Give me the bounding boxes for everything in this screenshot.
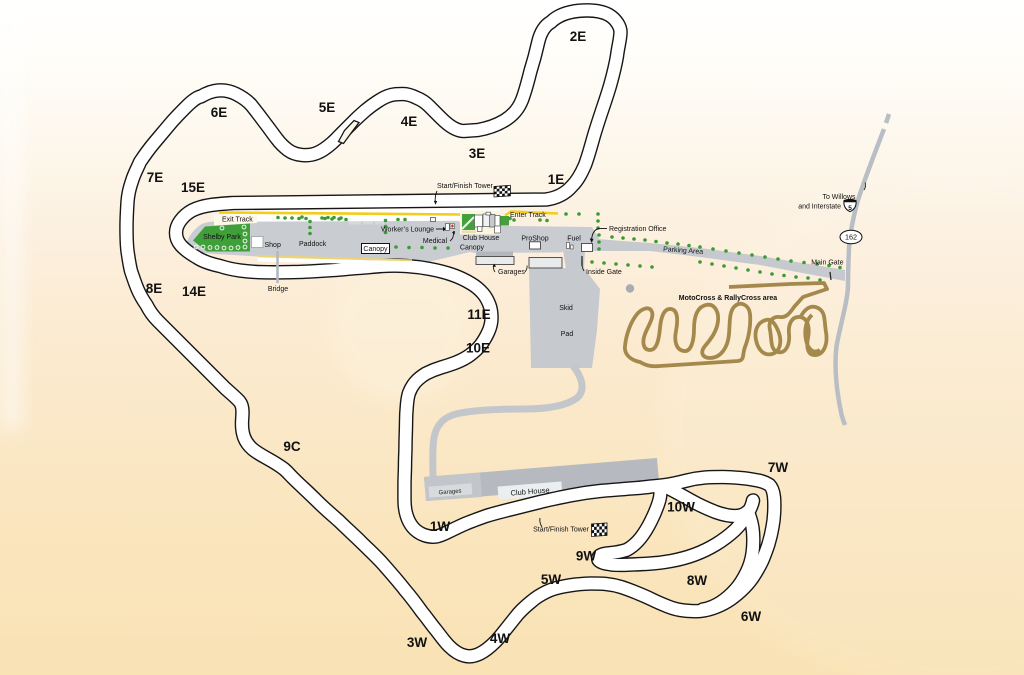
svg-text:Main Gate: Main Gate: [811, 260, 843, 267]
svg-text:2E: 2E: [570, 29, 587, 44]
svg-text:1W: 1W: [430, 519, 451, 534]
svg-text:Canopy: Canopy: [363, 246, 388, 253]
svg-text:Inside Gate: Inside Gate: [586, 269, 622, 276]
svg-text:Paddock: Paddock: [299, 241, 327, 248]
svg-text:4E: 4E: [401, 114, 418, 129]
svg-text:Shop: Shop: [265, 242, 281, 249]
svg-text:1E: 1E: [548, 172, 565, 187]
svg-text:14E: 14E: [182, 284, 206, 299]
svg-text:6E: 6E: [211, 105, 228, 120]
svg-text:7E: 7E: [147, 170, 164, 185]
svg-text:and Interstate: and Interstate: [798, 204, 841, 211]
svg-text:15E: 15E: [181, 180, 205, 195]
svg-text:Club House: Club House: [463, 235, 500, 242]
svg-text:11E: 11E: [467, 307, 490, 322]
svg-text:9C: 9C: [283, 439, 301, 454]
svg-text:4W: 4W: [490, 631, 511, 646]
svg-text:Fuel: Fuel: [567, 236, 581, 243]
svg-text:5E: 5E: [319, 100, 336, 115]
svg-text:Enter Track: Enter Track: [510, 212, 546, 219]
svg-text:Registration Office: Registration Office: [609, 226, 667, 233]
svg-text:Shelby Park: Shelby Park: [203, 234, 241, 241]
svg-text:Worker’s Lounge: Worker’s Lounge: [381, 227, 434, 234]
svg-text:8W: 8W: [687, 573, 708, 588]
svg-text:Medical: Medical: [423, 238, 448, 245]
svg-text:8E: 8E: [146, 281, 163, 296]
svg-text:10W: 10W: [667, 500, 695, 515]
svg-text:3W: 3W: [407, 635, 428, 650]
svg-text:Start/Finish Tower: Start/Finish Tower: [437, 183, 494, 190]
svg-text:Garages: Garages: [498, 269, 525, 276]
svg-text:Pad: Pad: [561, 331, 574, 338]
svg-text:9W: 9W: [576, 549, 597, 564]
svg-text:10E: 10E: [466, 341, 490, 356]
svg-text:Bridge: Bridge: [268, 286, 288, 293]
svg-text:6W: 6W: [741, 609, 762, 624]
svg-text:5W: 5W: [541, 572, 562, 587]
svg-text:7W: 7W: [768, 460, 789, 475]
svg-text:Exit Track: Exit Track: [222, 217, 253, 224]
svg-text:Skid: Skid: [559, 305, 573, 312]
svg-text:Canopy: Canopy: [460, 245, 485, 252]
svg-text:3E: 3E: [469, 146, 486, 161]
svg-text:Start/Finish Tower: Start/Finish Tower: [533, 527, 590, 534]
svg-text:162: 162: [845, 233, 857, 242]
svg-text:MotoCross & RallyCross area: MotoCross & RallyCross area: [679, 295, 778, 302]
svg-text:5: 5: [848, 205, 852, 212]
